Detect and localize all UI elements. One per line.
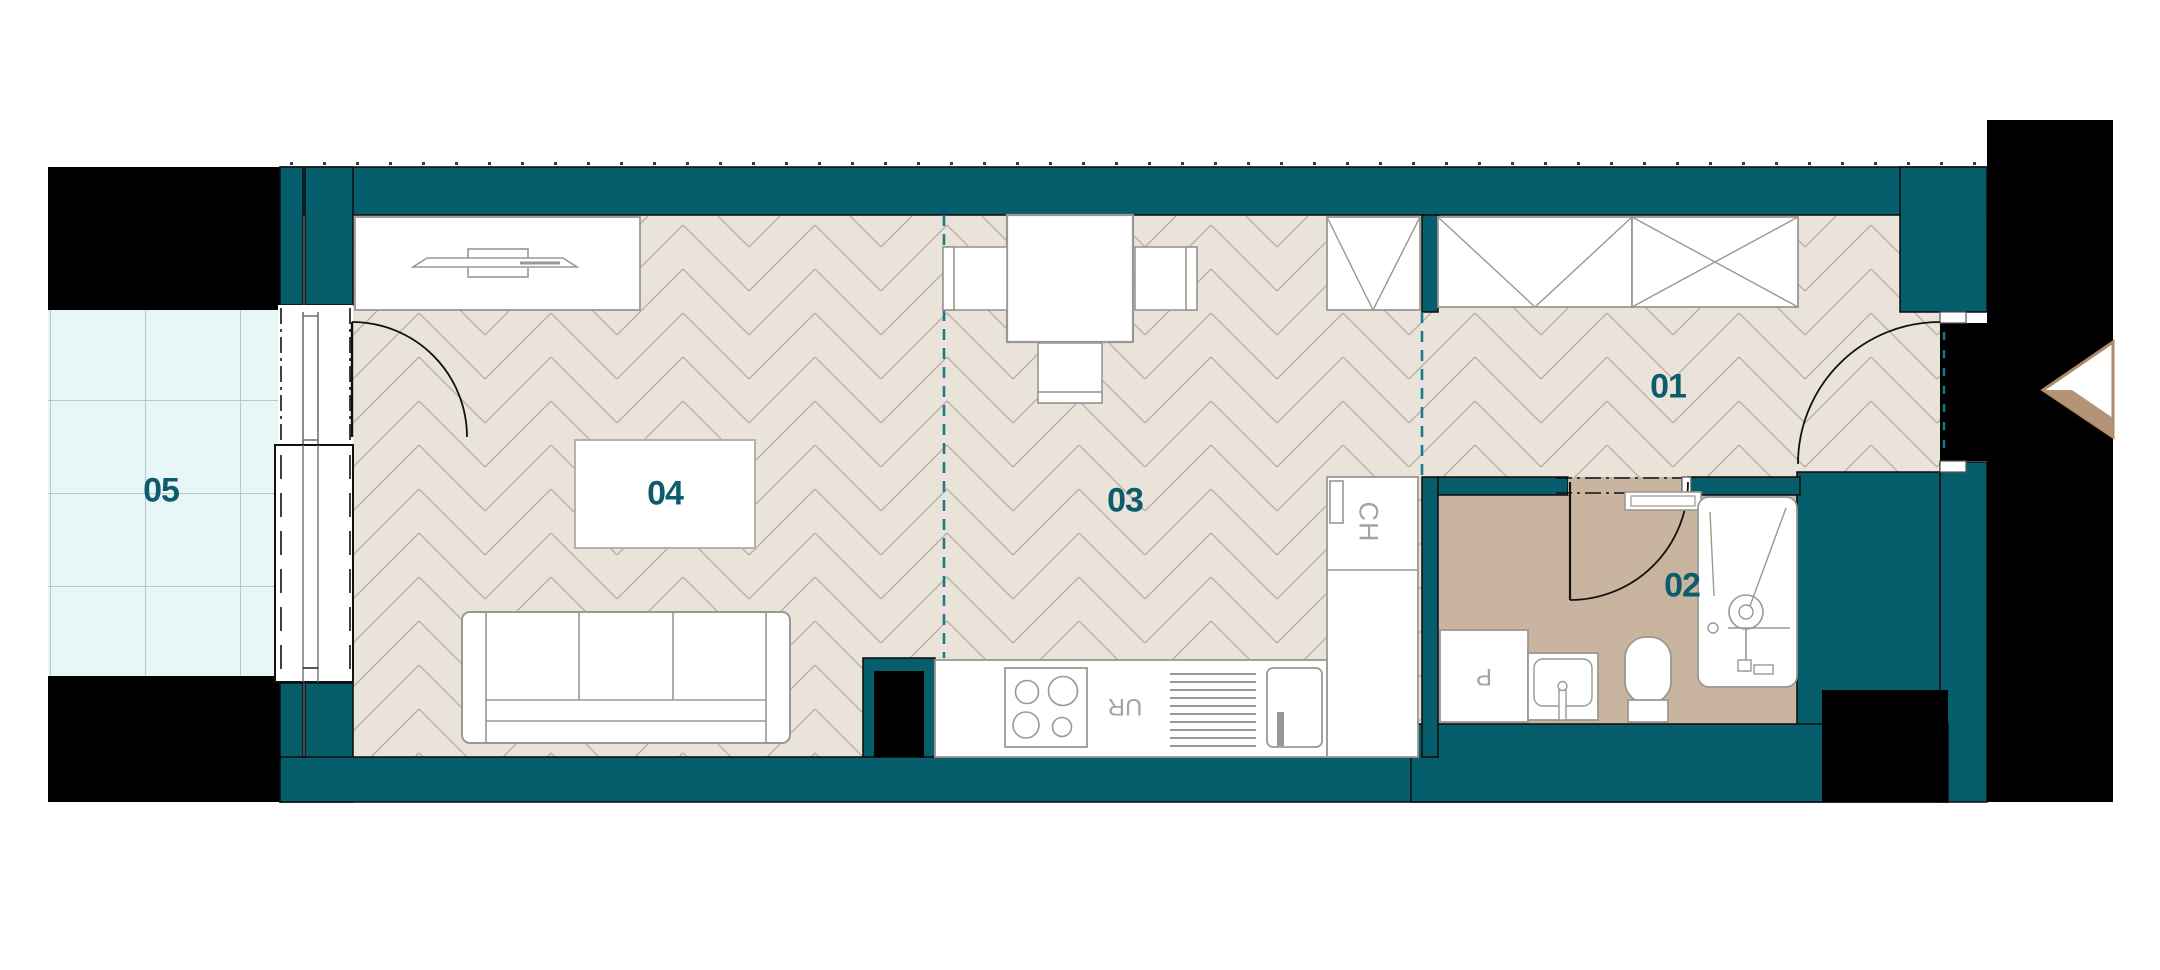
fridge-door-detail (1330, 481, 1343, 523)
wall-left-upper-b (305, 167, 353, 305)
wall-bathroom-top-left (1438, 477, 1568, 495)
wardrobe-hall-2 (1632, 217, 1798, 307)
wall-right-upper (1900, 167, 1987, 312)
bathroom-sink-tap (1559, 690, 1566, 720)
towel-rail (1625, 492, 1701, 510)
structure-block-top-left (48, 167, 280, 310)
floor-plan-canvas: 01 02 03 04 05 CH UR P const data = JSON… (0, 0, 2160, 970)
structure-block-bathroom-se (1822, 690, 1948, 802)
structure-block-right (1987, 120, 2113, 802)
wardrobe-room03 (1327, 217, 1420, 310)
room-label-05: 05 (143, 472, 179, 511)
wall-bathroom-top-right (1688, 477, 1800, 495)
wall-top (280, 167, 1987, 215)
wall-left-upper-a (280, 167, 303, 305)
dining-table (1007, 215, 1133, 342)
dining-chair-bottom-back (1038, 392, 1102, 403)
dining-chair-right-back (1186, 247, 1197, 310)
kitchen-sink (1267, 668, 1322, 747)
room-label-03: 03 (1107, 482, 1143, 521)
wall-bathroom-left (1422, 477, 1438, 757)
room-label-04: 04 (647, 475, 683, 514)
balcony-sliding-panel (275, 445, 353, 682)
structure-block-bottom-left (48, 676, 280, 802)
wall-partition-stub-03-01 (1422, 215, 1438, 312)
entrance-opening (1940, 323, 1987, 461)
washing-machine-label: P (1476, 662, 1492, 690)
kitchen-sink-tap (1277, 712, 1284, 746)
bathroom-sink (1528, 653, 1598, 720)
toilet (1625, 637, 1671, 722)
dishwasher-label: UR (1108, 692, 1143, 720)
room-label-02: 02 (1664, 567, 1700, 606)
sofa (462, 612, 790, 743)
wardrobe-hall-1 (1438, 217, 1632, 307)
room-label-01: 01 (1650, 368, 1686, 407)
shower-mixer (1738, 660, 1751, 671)
entrance-jamb-top (1940, 312, 1966, 323)
shower (1698, 497, 1797, 687)
dining-chair-left-back (943, 247, 954, 310)
fridge-label: CH (1353, 502, 1384, 543)
column-kitchen-shaft (874, 671, 924, 757)
floor-plan-drawing (0, 0, 2160, 970)
entrance-jamb-bottom (1940, 461, 1966, 472)
